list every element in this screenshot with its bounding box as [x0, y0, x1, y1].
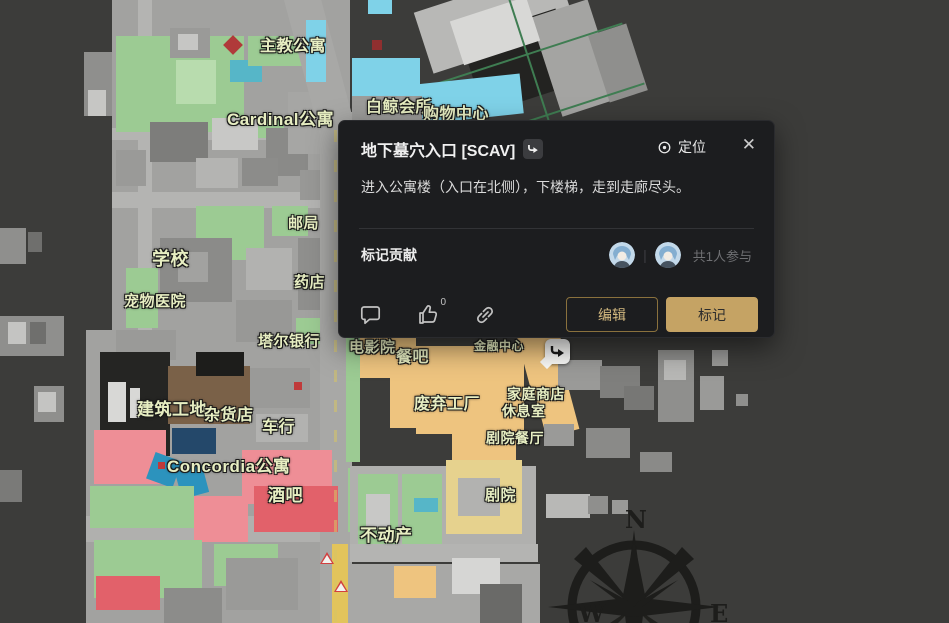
- map-label: 剧院餐厅: [486, 428, 544, 448]
- map-block: [372, 40, 382, 50]
- avatar[interactable]: [655, 242, 681, 268]
- map-block: [414, 498, 438, 512]
- svg-text:E: E: [710, 599, 728, 623]
- avatar[interactable]: [609, 242, 635, 268]
- map-label: 餐吧: [396, 343, 429, 367]
- map-block: [350, 544, 538, 562]
- map-label: 主教公寓: [260, 32, 326, 56]
- map-label: 车行: [262, 413, 295, 437]
- map-label: 药店: [294, 271, 325, 292]
- map-block: [8, 322, 26, 344]
- map-block: [178, 34, 198, 50]
- contribution-label: 标记贡献: [361, 245, 417, 265]
- map-block: [0, 228, 26, 264]
- map-block: [116, 150, 146, 186]
- road-centerline: [334, 130, 337, 623]
- map-block: [700, 376, 724, 410]
- map-block: [158, 462, 165, 469]
- svg-text:W: W: [577, 599, 606, 623]
- map-label: 电影院: [349, 336, 396, 357]
- map-block: [712, 350, 728, 366]
- edit-button[interactable]: 编辑: [566, 297, 658, 332]
- marker-popup: 地下墓穴入口 [SCAV] 定位 ✕ 进入公寓楼（入口在北侧），下楼梯，走到走廊…: [338, 120, 775, 338]
- map-block: [176, 60, 216, 104]
- map-block: [90, 486, 194, 528]
- map-block: [394, 566, 436, 598]
- enter-arrow-icon: [548, 342, 567, 361]
- map-label: 剧院: [485, 484, 516, 505]
- map-block: [640, 452, 672, 472]
- map-block: [624, 386, 654, 410]
- map-block: [586, 428, 630, 458]
- mark-button[interactable]: 标记: [666, 297, 758, 332]
- map-label: 不动产: [360, 521, 413, 546]
- map-label: 邮局: [288, 212, 319, 233]
- enter-arrow-icon: [523, 139, 543, 159]
- hazard-triangle-icon: [320, 552, 334, 564]
- map-block: [88, 90, 106, 116]
- map-block: [246, 248, 292, 290]
- comment-icon[interactable]: [359, 303, 383, 327]
- like-icon[interactable]: 0: [416, 303, 440, 327]
- map-block: [368, 0, 392, 14]
- compass-rose-icon: N W E: [530, 510, 740, 623]
- map-block: [196, 158, 238, 188]
- link-icon[interactable]: [473, 303, 497, 327]
- map-label: Concordia公寓: [167, 452, 291, 477]
- map-label: 宠物医院: [124, 290, 186, 311]
- map-label: 建筑工地: [137, 395, 207, 420]
- marker-description: 进入公寓楼（入口在北侧），下楼梯，走到走廊尽头。: [361, 177, 748, 199]
- map-block: [28, 232, 42, 252]
- map-label: Cardinal公寓: [227, 105, 334, 130]
- map-block: [38, 392, 56, 412]
- map-block: [736, 394, 748, 406]
- divider: |: [643, 247, 647, 263]
- map-block: [226, 558, 298, 610]
- map-label: 杂货店: [204, 401, 254, 425]
- map-block: [164, 588, 222, 623]
- close-icon[interactable]: ✕: [742, 135, 756, 155]
- map-block: [108, 382, 126, 422]
- svg-text:N: N: [625, 510, 647, 534]
- catacombs-entrance-marker[interactable]: [545, 339, 570, 364]
- app-window: 主教公寓Cardinal公寓白鲸会所购物中心邮局学校药店宠物医院塔尔银行电影院餐…: [0, 0, 949, 623]
- divider: [359, 228, 754, 229]
- map-block: [0, 470, 22, 502]
- map-label: 酒吧: [268, 481, 303, 506]
- map-block: [172, 428, 216, 454]
- participants-count: 共1人参与: [693, 246, 752, 265]
- map-label: 休息室: [502, 401, 546, 421]
- map-block: [664, 360, 686, 380]
- map-block: [544, 424, 574, 446]
- map-label: 学校: [152, 245, 189, 271]
- target-icon: [657, 140, 672, 155]
- popup-title: 地下墓穴入口 [SCAV]: [361, 137, 515, 161]
- hazard-triangle-icon: [334, 580, 348, 592]
- map-block: [194, 496, 248, 542]
- map-block: [96, 576, 160, 610]
- map-block: [480, 584, 522, 623]
- map-label: 废弃工厂: [414, 390, 480, 414]
- map-block: [294, 382, 302, 390]
- locate-button[interactable]: 定位: [657, 137, 706, 157]
- map-label: 塔尔银行: [258, 330, 320, 351]
- locate-label: 定位: [678, 137, 706, 157]
- like-count: 0: [440, 297, 446, 308]
- map-block: [150, 122, 208, 162]
- map-label: 金融中心: [474, 337, 524, 354]
- map-block: [242, 158, 278, 186]
- map-block: [196, 352, 244, 376]
- map-block: [30, 322, 46, 344]
